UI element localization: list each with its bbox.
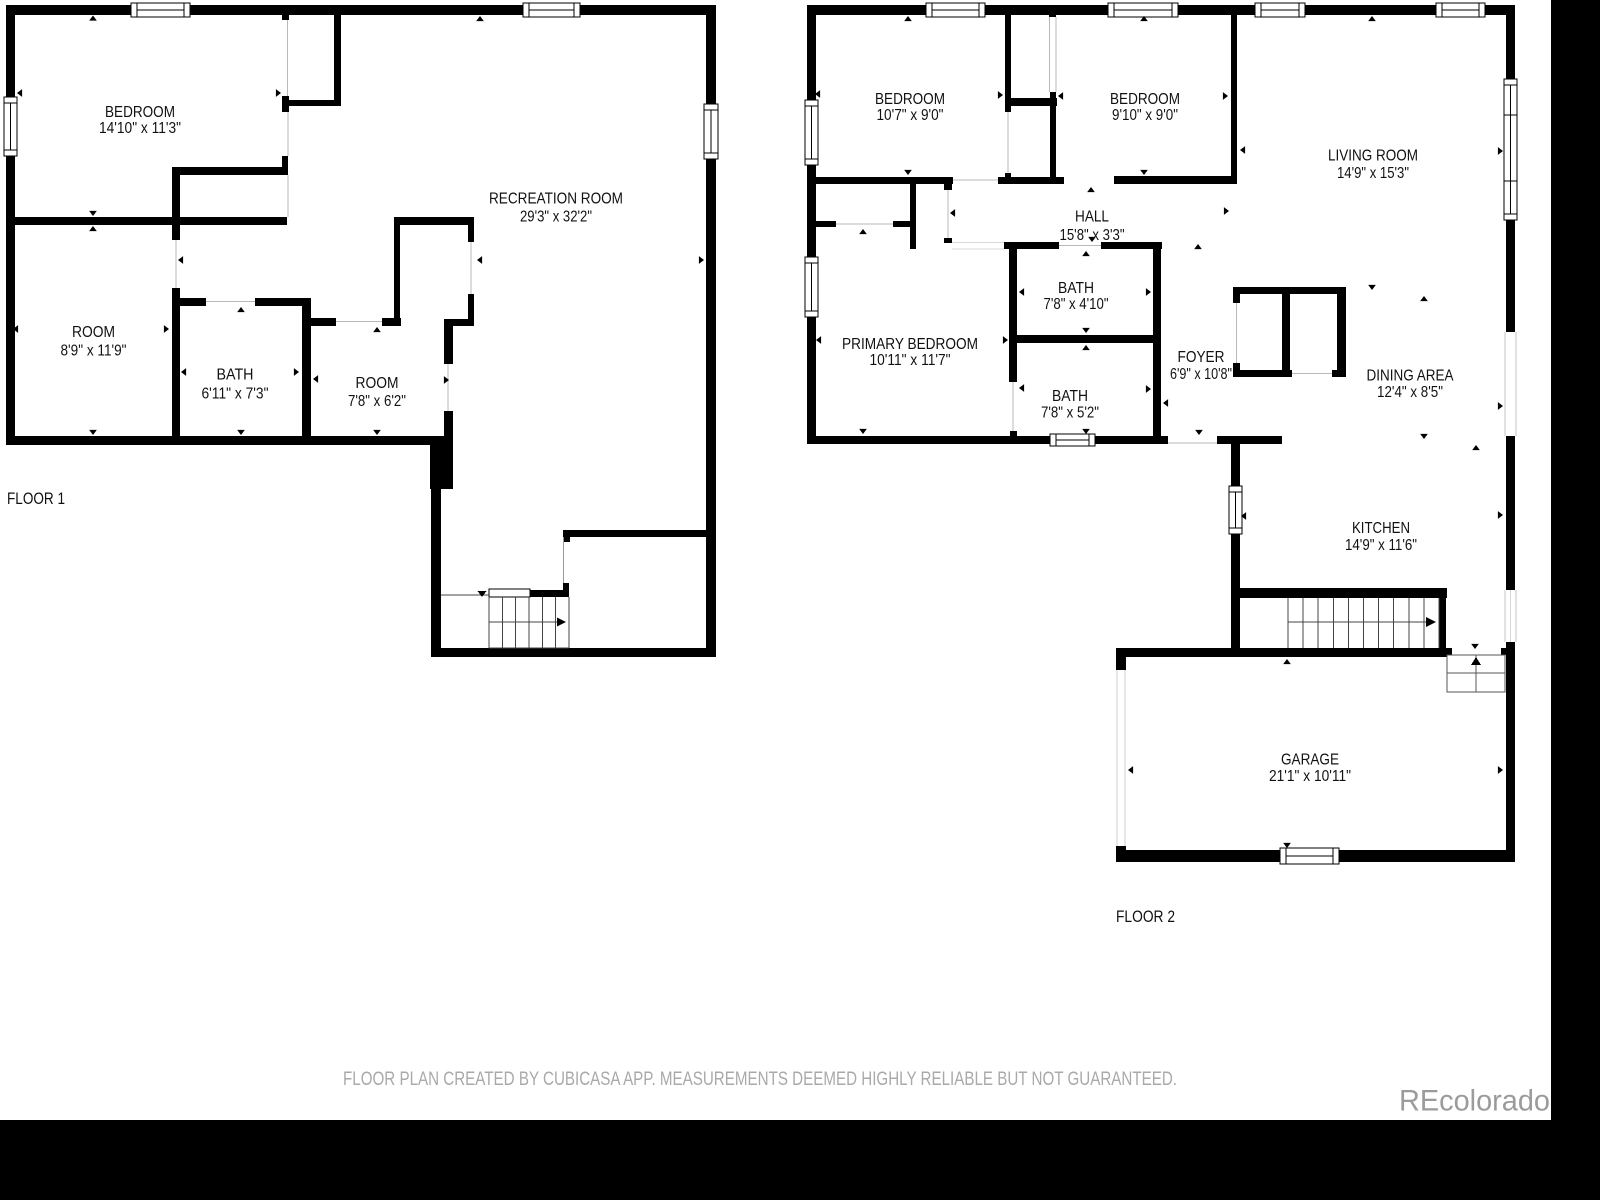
svg-text:BEDROOM: BEDROOM — [105, 104, 175, 121]
svg-text:8'9" x 11'9": 8'9" x 11'9" — [61, 343, 127, 360]
svg-text:15'8" x 3'3": 15'8" x 3'3" — [1060, 227, 1125, 244]
svg-text:14'9" x 15'3": 14'9" x 15'3" — [1337, 165, 1409, 182]
svg-text:PRIMARY BEDROOM: PRIMARY BEDROOM — [842, 336, 978, 353]
svg-text:6'9" x 10'8": 6'9" x 10'8" — [1170, 366, 1232, 383]
svg-text:HALL: HALL — [1075, 209, 1109, 226]
svg-text:6'11" x 7'3": 6'11" x 7'3" — [202, 386, 269, 403]
svg-text:GARAGE: GARAGE — [1281, 752, 1339, 769]
svg-text:14'10" x 11'3": 14'10" x 11'3" — [99, 120, 181, 137]
svg-text:LIVING ROOM: LIVING ROOM — [1328, 148, 1418, 165]
svg-text:BEDROOM: BEDROOM — [875, 91, 945, 108]
svg-text:FOYER: FOYER — [1178, 349, 1225, 366]
svg-text:FLOOR 2: FLOOR 2 — [1116, 908, 1175, 926]
svg-text:7'8" x 6'2": 7'8" x 6'2" — [348, 393, 406, 410]
svg-text:FLOOR 1: FLOOR 1 — [7, 490, 65, 508]
svg-text:BATH: BATH — [1052, 388, 1088, 405]
svg-text:DINING AREA: DINING AREA — [1367, 368, 1455, 385]
svg-text:ROOM: ROOM — [356, 375, 399, 392]
svg-text:BATH: BATH — [217, 367, 254, 384]
svg-text:7'8" x 5'2": 7'8" x 5'2" — [1041, 405, 1099, 422]
svg-text:21'1" x 10'11": 21'1" x 10'11" — [1269, 768, 1351, 785]
svg-text:7'8" x 4'10": 7'8" x 4'10" — [1044, 296, 1109, 313]
svg-text:FLOOR PLAN CREATED BY CUBICASA: FLOOR PLAN CREATED BY CUBICASA APP. MEAS… — [343, 1069, 1177, 1090]
svg-text:REcolorado: REcolorado — [1399, 1085, 1550, 1118]
svg-text:ROOM: ROOM — [72, 324, 115, 341]
svg-text:10'7" x 9'0": 10'7" x 9'0" — [877, 107, 944, 124]
svg-text:BATH: BATH — [1058, 280, 1094, 297]
svg-text:12'4" x 8'5": 12'4" x 8'5" — [1377, 384, 1443, 401]
svg-text:KITCHEN: KITCHEN — [1352, 520, 1410, 537]
svg-text:RECREATION ROOM: RECREATION ROOM — [489, 191, 623, 208]
svg-text:9'10" x 9'0": 9'10" x 9'0" — [1112, 107, 1178, 124]
svg-text:29'3" x 32'2": 29'3" x 32'2" — [520, 209, 592, 226]
svg-text:10'11" x 11'7": 10'11" x 11'7" — [870, 352, 951, 369]
svg-text:BEDROOM: BEDROOM — [1110, 91, 1180, 108]
svg-text:14'9" x 11'6": 14'9" x 11'6" — [1345, 537, 1417, 554]
